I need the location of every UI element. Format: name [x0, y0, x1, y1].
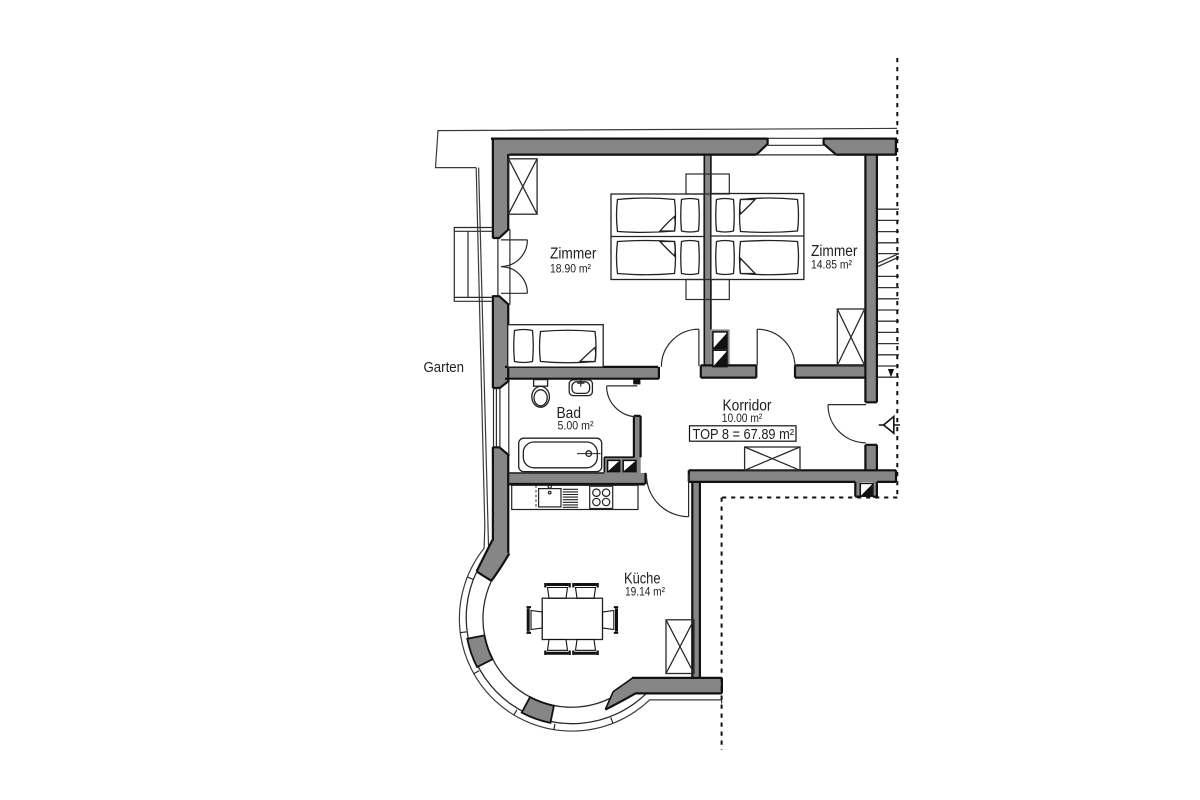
svg-text:18.90 m²: 18.90 m² [550, 262, 591, 276]
svg-text:TOP 8 = 67.89 m²: TOP 8 = 67.89 m² [693, 427, 795, 443]
svg-text:19.14 m²: 19.14 m² [625, 585, 665, 599]
svg-text:10.00 m²: 10.00 m² [722, 411, 763, 425]
svg-text:5.00 m²: 5.00 m² [558, 419, 594, 433]
svg-text:14.85 m²: 14.85 m² [811, 257, 852, 271]
svg-text:Zimmer: Zimmer [550, 246, 597, 263]
svg-text:Garten: Garten [424, 360, 465, 376]
